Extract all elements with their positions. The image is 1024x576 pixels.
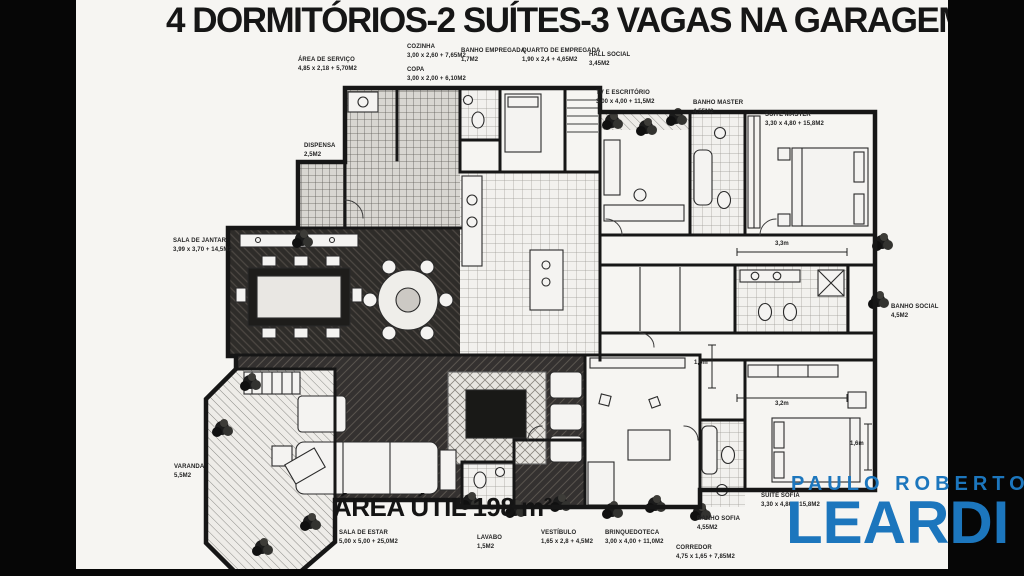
room-label-corredor: CORREDOR4,75 x 1,65 + 7,85M2 — [676, 544, 735, 561]
room-label-copa: COPA3,00 x 2,00 + 6,10M2 — [407, 66, 466, 83]
room-label-vestibulo: VESTÍBULO1,65 x 2,8 + 4,5M2 — [541, 529, 593, 546]
dimension-label: 3,3m — [775, 241, 789, 247]
floorplan-page: 4 DORMITÓRIOS-2 SUÍTES-3 VAGAS NA GARAGE… — [0, 0, 1024, 576]
room-label-lavabo: LAVABO1,5M2 — [477, 534, 502, 551]
room-label-banho-sofia: BANHO SOFIA4,55M2 — [697, 515, 740, 532]
room-label-sala-estar: SALA DE ESTAR5,00 x 5,00 + 25,0M2 — [339, 529, 398, 546]
dimension-label: 1,6m — [694, 360, 708, 366]
room-label-tv-escritorio: TV E ESCRITÓRIO3,00 x 4,00 + 11,5M2 — [596, 89, 655, 106]
room-label-varanda: VARANDA5,5M2 — [174, 463, 204, 480]
room-label-hall-social: HALL SOCIAL3,45M2 — [589, 51, 630, 68]
letterbox-bottom — [0, 569, 1024, 576]
area-util-label: ÁREA ÚTIL 198 m² — [333, 492, 552, 523]
room-label-suite-master: SUITE MASTER3,30 x 4,80 + 15,8M2 — [765, 111, 824, 128]
page-title: 4 DORMITÓRIOS-2 SUÍTES-3 VAGAS NA GARAGE… — [166, 1, 966, 41]
room-label-dispensa: DISPENSA2,5M2 — [304, 142, 335, 159]
room-label-brinquedoteca: BRINQUEDOTECA3,00 x 4,00 + 11,0M2 — [605, 529, 664, 546]
room-label-sala-jantar: SALA DE JANTAR3,99 x 3,70 + 14,5M2 — [173, 237, 232, 254]
room-label-banho-empregada: BANHO EMPREGADA1,7M2 — [461, 47, 525, 64]
dimension-label: 3,2m — [775, 401, 789, 407]
room-label-banho-master: BANHO MASTER4,55M2 — [693, 99, 743, 116]
room-label-banho-social: BANHO SOCIAL4,5M2 — [891, 303, 939, 320]
brand-wordmark: LEARDI — [786, 493, 1009, 553]
room-label-cozinha: COZINHA3,00 x 2,60 + 7,65M2 — [407, 43, 466, 60]
letterbox-left — [0, 0, 76, 576]
dimension-label: 1,6m — [850, 441, 864, 447]
room-label-area-servico: ÁREA DE SERVIÇO4,85 x 2,18 + 5,70M2 — [298, 56, 357, 73]
